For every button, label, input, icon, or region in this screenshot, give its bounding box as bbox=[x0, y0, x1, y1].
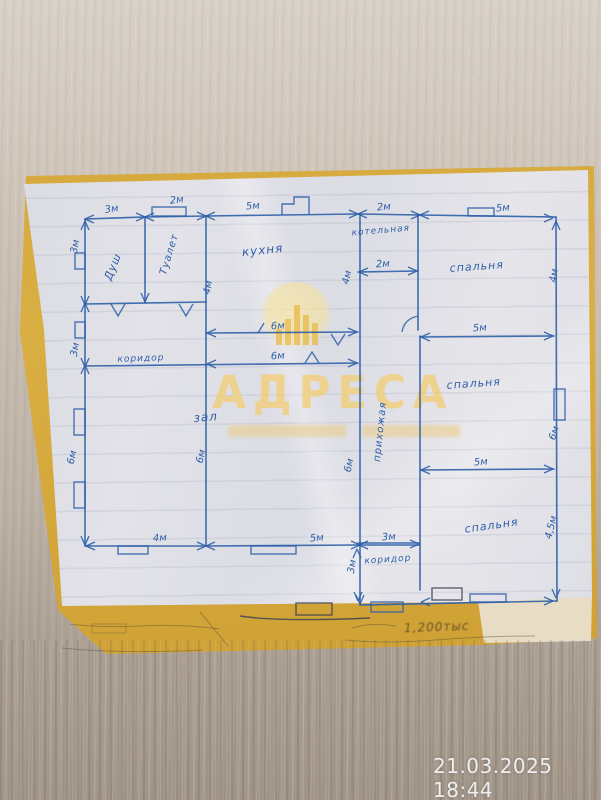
watermark-buildings-icon bbox=[276, 296, 322, 345]
photo-of-floor-plan: АДРЕСА bbox=[0, 0, 601, 800]
watermark-title: АДРЕСА bbox=[212, 366, 484, 419]
handwritten-price-note: 1,200тыс bbox=[404, 619, 470, 635]
photo-timestamp: 21.03.2025 18:44 bbox=[433, 754, 601, 800]
watermark-subtitle-block bbox=[362, 425, 460, 437]
watermark-subtitle-block bbox=[228, 425, 346, 437]
